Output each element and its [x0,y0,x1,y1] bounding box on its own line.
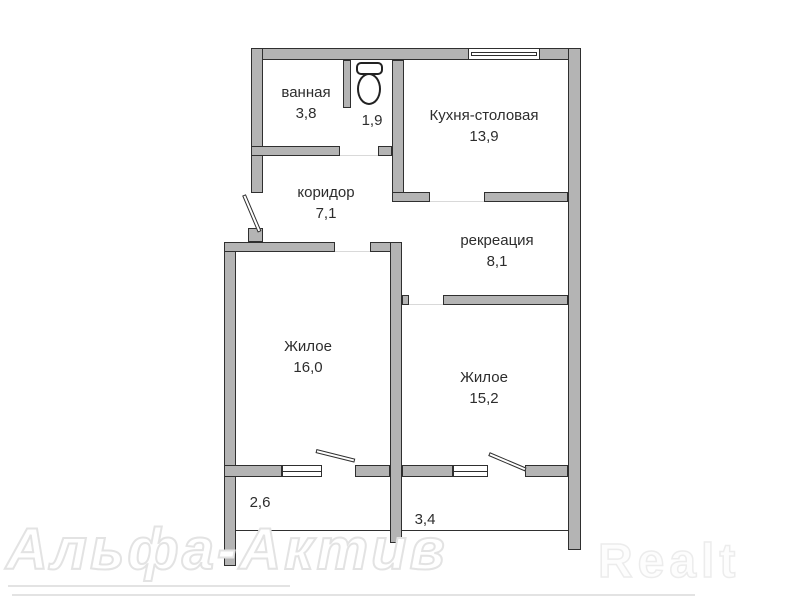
door-leaf-living1-balcony [316,449,356,463]
room-name: Жилое [460,367,508,388]
room-name: коридор [297,182,354,203]
watermark-underline-short [8,585,290,587]
threshold-kitchen-door [430,201,484,202]
room-name: рекреация [460,230,533,251]
window-living1 [282,465,322,477]
door-leaf-living2-balcony [488,452,526,471]
wall-recreation-notch [402,295,409,305]
wall-recreation-bottom [443,295,568,305]
watermark-underline-long [12,594,695,596]
watermark-portal: Realt [598,534,740,589]
room-area: 8,1 [460,251,533,272]
watermark-agency: Альфа-Актив [6,516,448,583]
threshold-recreation-door [409,304,443,305]
wall-bottom-right-b [525,465,568,477]
wall-bottom-left-a [224,465,282,477]
room-area: 15,2 [460,388,508,409]
room-name: Кухня-столовая [430,105,539,126]
floor-plan: ванная 3,8 1,9 Кухня-столовая 13,9 корид… [0,0,800,600]
room-label-living1: Жилое 16,0 [284,336,332,378]
room-name: Жилое [284,336,332,357]
wall-bathroom-bottom [251,146,340,156]
wall-bottom-left-b [355,465,390,477]
toilet-bowl-icon [357,73,381,105]
room-area: 1,9 [362,110,383,131]
wall-exterior-left-upper [251,48,263,193]
room-label-kitchen: Кухня-столовая 13,9 [430,105,539,147]
room-name: ванная [281,82,330,103]
window-pane [283,471,321,472]
wall-kitchen-bottom [484,192,568,202]
room-area: 7,1 [297,203,354,224]
window-top [468,48,540,60]
window-living2 [453,465,488,477]
room-area: 16,0 [284,357,332,378]
wall-bathroom-bottom-stub [378,146,392,156]
room-label-balcony1: 2,6 [250,492,271,513]
threshold-living1-door [335,251,370,252]
room-label-living2: Жилое 15,2 [460,367,508,409]
wall-bottom-right-a [402,465,453,477]
wall-kitchen-left [392,60,404,202]
room-label-corridor: коридор 7,1 [297,182,354,224]
room-label-bathroom: ванная 3,8 [281,82,330,124]
room-area: 13,9 [430,126,539,147]
wall-living1-top [224,242,335,252]
room-area: 3,8 [281,103,330,124]
wall-exterior-right [568,48,581,550]
door-leaf-entry [242,194,261,232]
wall-kitchen-bottom-stub [392,192,430,202]
room-label-toilet: 1,9 [362,110,383,131]
wall-central [390,242,402,543]
window-pane [454,471,487,472]
threshold-bathroom-door [340,155,378,156]
room-area: 2,6 [250,492,271,513]
wall-bathroom-partition [343,60,351,108]
window-pane [471,52,537,56]
room-label-recreation: рекреация 8,1 [460,230,533,272]
